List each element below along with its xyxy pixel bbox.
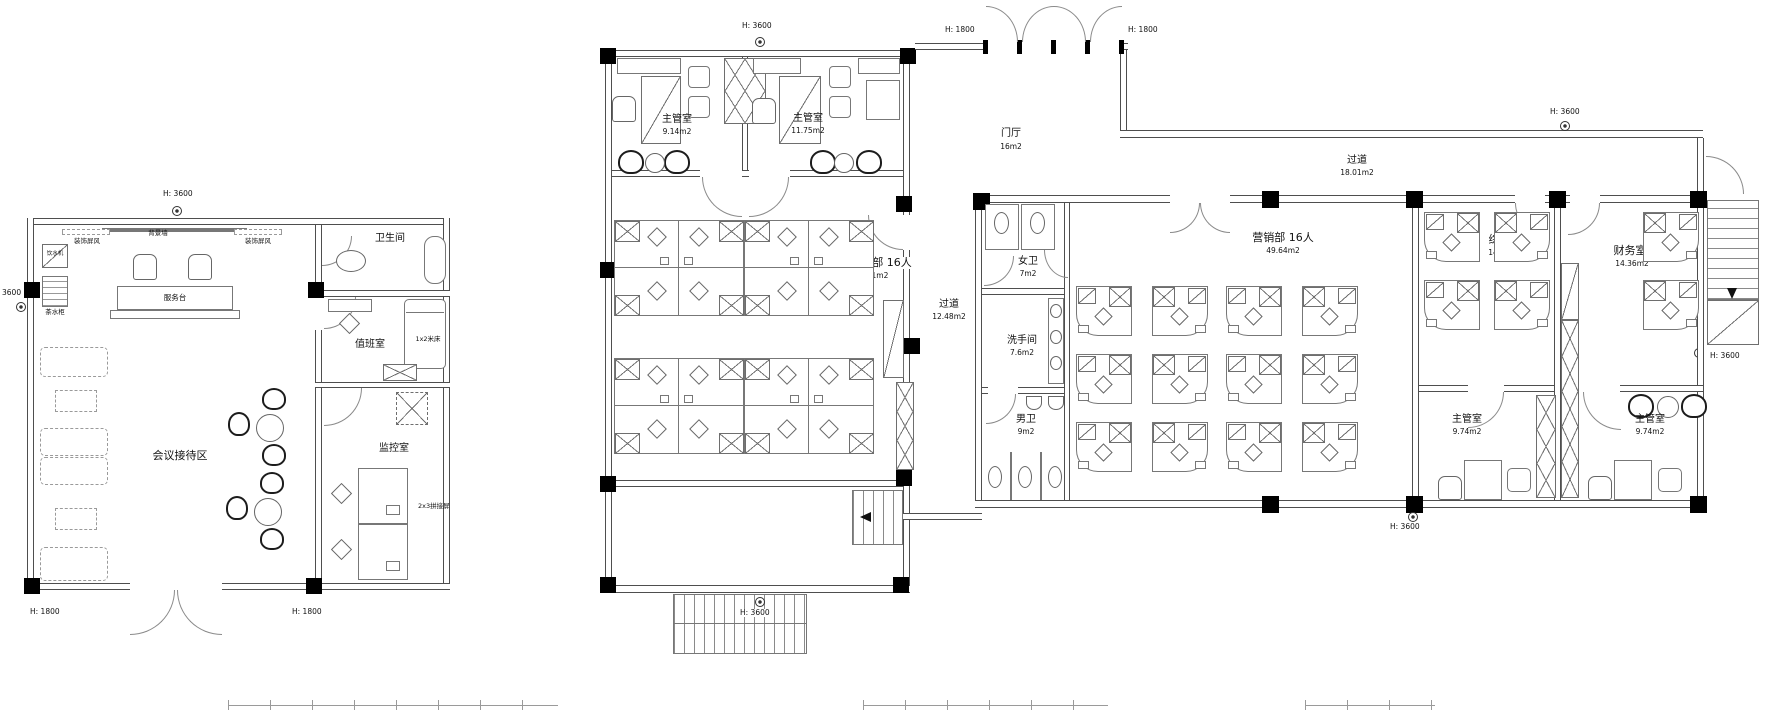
door-post bbox=[983, 40, 988, 54]
wall bbox=[982, 288, 1064, 295]
urinal bbox=[1048, 396, 1064, 410]
keyboard bbox=[1338, 424, 1356, 440]
dimension-ticks bbox=[1305, 700, 1435, 710]
cabinet bbox=[1644, 213, 1666, 233]
column bbox=[1262, 191, 1279, 208]
monitor-desk bbox=[358, 524, 408, 580]
area-label-super3: 9.74m2 bbox=[1453, 428, 1482, 436]
wall bbox=[1120, 130, 1703, 138]
cabinet bbox=[617, 58, 681, 74]
cabinet bbox=[849, 359, 874, 380]
desk-phone bbox=[684, 395, 693, 403]
dim-h3600: H: 3600 bbox=[742, 22, 772, 30]
closet bbox=[1561, 320, 1579, 498]
desk-phone bbox=[660, 257, 669, 265]
chair bbox=[133, 254, 157, 280]
keyboard bbox=[1228, 424, 1246, 440]
exterior-stair bbox=[673, 594, 807, 654]
cabinet bbox=[745, 359, 770, 380]
door-post bbox=[1051, 40, 1056, 54]
area-label-super2: 11.75m2 bbox=[791, 127, 825, 135]
column bbox=[24, 578, 40, 594]
dim-h3600: H: 3600 bbox=[1390, 523, 1420, 531]
area-label-wc-men: 9m2 bbox=[1018, 428, 1035, 436]
wall bbox=[903, 57, 910, 215]
pc bbox=[1078, 393, 1089, 401]
cabinet bbox=[719, 359, 744, 380]
door-arc bbox=[1706, 156, 1744, 194]
wall bbox=[903, 513, 982, 520]
area-label-marketing: 49.64m2 bbox=[1266, 247, 1300, 255]
cabinet bbox=[1303, 287, 1325, 307]
toilet bbox=[1048, 466, 1062, 488]
mirror-cabinet bbox=[1561, 263, 1579, 320]
column bbox=[600, 476, 616, 492]
stall-divider bbox=[1010, 452, 1012, 500]
pc bbox=[1078, 461, 1089, 469]
tub-chair bbox=[810, 150, 836, 174]
corridor-v-label: 过道 bbox=[939, 299, 959, 310]
keyboard bbox=[1078, 288, 1096, 304]
wall bbox=[915, 43, 985, 50]
pc bbox=[1686, 319, 1697, 327]
tub-chair bbox=[228, 412, 250, 436]
bed bbox=[404, 299, 446, 369]
pc-desk bbox=[866, 80, 900, 120]
level-symbol bbox=[16, 302, 26, 312]
door-arc bbox=[130, 590, 175, 635]
sink bbox=[336, 250, 366, 272]
desk-phone bbox=[660, 395, 669, 403]
keyboard bbox=[1426, 282, 1444, 298]
wall bbox=[605, 585, 910, 593]
tub-chair bbox=[1681, 394, 1707, 418]
cluster-divider bbox=[744, 405, 874, 406]
cabinet bbox=[1259, 423, 1281, 443]
pc bbox=[1345, 461, 1356, 469]
cabinet bbox=[1457, 213, 1479, 233]
cabinet bbox=[1495, 213, 1517, 233]
room-label-toilet: 卫生间 bbox=[375, 233, 405, 244]
sink bbox=[1050, 330, 1062, 344]
keyboard bbox=[1078, 356, 1096, 372]
keyboard bbox=[1188, 288, 1206, 304]
room-label-super4: 主管室 bbox=[1635, 414, 1665, 425]
column bbox=[896, 196, 912, 212]
stall-divider bbox=[1040, 452, 1042, 500]
label-bg-wall: 背景墙 bbox=[148, 230, 168, 237]
column bbox=[600, 48, 616, 64]
pc bbox=[1228, 461, 1239, 469]
level-symbol bbox=[172, 206, 182, 216]
area-label-wc-women: 7m2 bbox=[1020, 270, 1037, 278]
wall bbox=[27, 218, 450, 225]
cluster-divider bbox=[808, 358, 809, 454]
coffee-table bbox=[55, 508, 97, 530]
chair bbox=[1588, 476, 1612, 500]
stair-arrow bbox=[1727, 288, 1737, 299]
wall bbox=[1600, 195, 1703, 203]
sofa bbox=[40, 347, 108, 377]
cabinet bbox=[615, 359, 640, 380]
stair-rail bbox=[673, 623, 807, 624]
door-arc bbox=[986, 394, 1016, 424]
duty-desk bbox=[328, 299, 372, 312]
cabinet bbox=[753, 58, 801, 74]
cabinet bbox=[615, 295, 640, 316]
room-label-washroom: 洗手间 bbox=[1007, 335, 1037, 346]
stair-turn bbox=[1707, 300, 1759, 345]
cabinet bbox=[1259, 287, 1281, 307]
level-symbol bbox=[1408, 512, 1418, 522]
wall bbox=[27, 583, 130, 590]
cluster-divider bbox=[744, 267, 874, 268]
cabinet bbox=[1259, 355, 1281, 375]
sofa bbox=[40, 547, 108, 581]
keyboard bbox=[1530, 214, 1548, 230]
cabinet bbox=[383, 364, 417, 381]
cabinet bbox=[1109, 355, 1131, 375]
cabinet bbox=[745, 221, 770, 242]
cluster-divider bbox=[808, 220, 809, 316]
cabinet bbox=[719, 433, 744, 454]
desk-phone bbox=[684, 257, 693, 265]
pc bbox=[1426, 251, 1437, 259]
tub-chair bbox=[262, 388, 286, 410]
cluster-divider bbox=[614, 405, 744, 406]
desk-phone bbox=[790, 257, 799, 265]
level-symbol bbox=[755, 597, 765, 607]
wall bbox=[1412, 203, 1419, 500]
cabinet bbox=[719, 221, 744, 242]
toilet bbox=[994, 212, 1009, 234]
cabinet bbox=[719, 295, 744, 316]
door-arc bbox=[1568, 203, 1600, 235]
pc bbox=[386, 561, 400, 571]
cluster-divider bbox=[678, 220, 679, 316]
cabinet bbox=[1644, 281, 1666, 301]
deco-screen bbox=[62, 229, 110, 235]
cabinet bbox=[1457, 281, 1479, 301]
door-post bbox=[1119, 40, 1124, 54]
room-label-wc-men: 男卫 bbox=[1016, 414, 1036, 425]
desk-phone bbox=[814, 395, 823, 403]
wall bbox=[742, 170, 749, 177]
background-wall bbox=[102, 228, 247, 232]
toilet bbox=[1018, 466, 1032, 488]
cabinet bbox=[849, 433, 874, 454]
door-post bbox=[1017, 40, 1022, 54]
door-arc bbox=[1583, 392, 1621, 430]
guest-chair bbox=[829, 96, 851, 118]
column bbox=[1406, 191, 1423, 208]
door-arc bbox=[984, 256, 1014, 286]
closet bbox=[1536, 395, 1556, 498]
room-label-marketing: 营销部 16人 bbox=[1252, 232, 1314, 244]
column bbox=[24, 282, 40, 298]
column bbox=[1549, 191, 1566, 208]
keyboard bbox=[1338, 288, 1356, 304]
desk-phone bbox=[790, 395, 799, 403]
pc bbox=[1195, 393, 1206, 401]
keyboard bbox=[1188, 356, 1206, 372]
guest-chair bbox=[829, 66, 851, 88]
chair bbox=[331, 539, 352, 560]
wall bbox=[975, 195, 982, 508]
label-deco-screen: 装饰屏风 bbox=[74, 238, 100, 245]
door-arc bbox=[1044, 250, 1068, 278]
keyboard bbox=[1679, 214, 1697, 230]
wall bbox=[605, 50, 915, 57]
column bbox=[896, 470, 912, 486]
toilet bbox=[1030, 212, 1045, 234]
wall bbox=[1064, 203, 1070, 500]
door-arc bbox=[749, 177, 789, 217]
keyboard bbox=[1188, 424, 1206, 440]
chair bbox=[188, 254, 212, 280]
door-arc bbox=[1090, 6, 1122, 42]
dim-h1800: H: 1800 bbox=[1128, 26, 1158, 34]
keyboard bbox=[1338, 356, 1356, 372]
dim-h1800: H: 1800 bbox=[945, 26, 975, 34]
column bbox=[900, 48, 916, 64]
pc bbox=[1426, 319, 1437, 327]
desk bbox=[1614, 460, 1652, 500]
column bbox=[1406, 496, 1423, 513]
pc bbox=[1195, 461, 1206, 469]
room-label-monitor: 监控室 bbox=[379, 443, 409, 454]
room-label-reception: 会议接待区 bbox=[153, 450, 208, 462]
keyboard bbox=[1078, 424, 1096, 440]
keyboard bbox=[1426, 214, 1444, 230]
cabinet bbox=[745, 295, 770, 316]
deco-screen bbox=[234, 229, 282, 235]
closet bbox=[896, 382, 914, 470]
pc bbox=[1537, 251, 1548, 259]
dim-h3600: H: 3600 bbox=[1550, 108, 1580, 116]
sofa bbox=[40, 428, 108, 456]
mirror-cabinet bbox=[883, 300, 904, 378]
label-bed: 1x2米床 bbox=[415, 336, 440, 343]
tub-chair bbox=[260, 472, 284, 494]
wall bbox=[975, 195, 1170, 203]
keyboard bbox=[1679, 282, 1697, 298]
toilet bbox=[988, 466, 1002, 488]
corridor-top-label: 过道 bbox=[1347, 155, 1367, 166]
corridor-top-area: 18.01m2 bbox=[1340, 169, 1374, 177]
wall bbox=[982, 387, 988, 394]
wall bbox=[27, 218, 34, 590]
room-label-duty: 值班室 bbox=[355, 339, 385, 350]
dim-3600: 3600 bbox=[2, 289, 21, 297]
room-label-wc-women: 女卫 bbox=[1018, 256, 1038, 267]
pc bbox=[1537, 319, 1548, 327]
corridor-v-area: 12.48m2 bbox=[932, 313, 966, 321]
guest-chair bbox=[1507, 468, 1531, 492]
round-table bbox=[834, 153, 854, 173]
service-desk-front bbox=[110, 310, 240, 319]
pc bbox=[1078, 325, 1089, 333]
desk-phone bbox=[814, 257, 823, 265]
dim-h1800: H: 1800 bbox=[30, 608, 60, 616]
cabinet bbox=[858, 58, 900, 74]
dim-h3600: H: 3600 bbox=[163, 190, 193, 198]
sofa bbox=[40, 457, 108, 485]
cabinet bbox=[745, 433, 770, 454]
sink bbox=[1050, 304, 1062, 318]
tub-chair bbox=[618, 150, 644, 174]
wall bbox=[1018, 387, 1064, 394]
wall bbox=[1697, 138, 1704, 198]
cabinet bbox=[849, 295, 874, 316]
wall bbox=[322, 290, 450, 297]
door-arc bbox=[1200, 203, 1230, 233]
cabinet bbox=[1153, 355, 1175, 375]
cabinet bbox=[1303, 423, 1325, 443]
area-label-foyer: 16m2 bbox=[1000, 143, 1022, 151]
dimension-ticks bbox=[863, 700, 1108, 710]
pc bbox=[1228, 325, 1239, 333]
wall bbox=[605, 50, 612, 593]
pc bbox=[1195, 325, 1206, 333]
dim-h1800: H: 1800 bbox=[292, 608, 322, 616]
urinal bbox=[1026, 396, 1042, 410]
dimension-ticks bbox=[228, 700, 558, 710]
chair bbox=[612, 96, 636, 122]
cabinet bbox=[1109, 423, 1131, 443]
monitor-desk bbox=[358, 468, 408, 524]
guest-chair bbox=[688, 66, 710, 88]
chair bbox=[752, 98, 776, 124]
keyboard bbox=[1228, 288, 1246, 304]
wall bbox=[315, 330, 322, 583]
chair bbox=[1438, 476, 1462, 500]
splice-screen-box bbox=[396, 392, 428, 425]
column bbox=[306, 578, 322, 594]
cabinet bbox=[1495, 281, 1517, 301]
cabinet bbox=[1303, 355, 1325, 375]
desk bbox=[1464, 460, 1502, 500]
chair bbox=[331, 483, 352, 504]
room-label-super2: 主管室 bbox=[793, 113, 823, 124]
keyboard bbox=[1530, 282, 1548, 298]
pc bbox=[1345, 393, 1356, 401]
dim-h3600: H: 3600 bbox=[740, 609, 770, 617]
label-splice-screen: 2x3拼接屏 bbox=[418, 503, 450, 510]
cabinet bbox=[849, 221, 874, 242]
sink bbox=[1050, 356, 1062, 370]
column bbox=[600, 577, 616, 593]
pc bbox=[1345, 325, 1356, 333]
round-table bbox=[645, 153, 665, 173]
cabinet bbox=[1153, 287, 1175, 307]
column bbox=[893, 577, 909, 593]
door-arc bbox=[324, 388, 362, 426]
stair-arrow bbox=[860, 512, 871, 522]
coffee-table bbox=[55, 390, 97, 412]
column bbox=[904, 338, 920, 354]
label-water-dispenser: 饮水机 bbox=[47, 251, 64, 257]
room-label-super1: 主管室 bbox=[662, 114, 692, 125]
cabinet bbox=[615, 221, 640, 242]
cluster-divider bbox=[614, 267, 744, 268]
wall bbox=[612, 480, 903, 487]
area-label-super4: 9.74m2 bbox=[1636, 428, 1665, 436]
cluster-divider bbox=[678, 358, 679, 454]
label-deco-screen: 装饰屏风 bbox=[245, 238, 271, 245]
tea-cabinet bbox=[42, 276, 68, 307]
tub-chair bbox=[260, 528, 284, 550]
pc bbox=[1686, 251, 1697, 259]
door-arc bbox=[177, 590, 222, 635]
wall bbox=[1419, 385, 1468, 392]
door-arc bbox=[1054, 6, 1086, 42]
column bbox=[1690, 496, 1707, 513]
round-table bbox=[254, 498, 282, 526]
label-tea-cabinet: 茶水柜 bbox=[45, 309, 65, 316]
label-service-desk: 服务台 bbox=[164, 294, 187, 302]
door-arc bbox=[1022, 6, 1054, 42]
pc bbox=[1228, 393, 1239, 401]
dim-h3600: H: 3600 bbox=[1710, 352, 1740, 360]
cabinet bbox=[1109, 287, 1131, 307]
area-label-washroom: 7.6m2 bbox=[1010, 349, 1034, 357]
door-arc bbox=[702, 177, 742, 217]
floor-plan: 会议接待区 卫生间 值班室 监控室 服务台 背景墙 装饰屏风 装饰屏风 饮水机 … bbox=[0, 0, 1765, 712]
tub-chair bbox=[664, 150, 690, 174]
wall bbox=[222, 583, 450, 590]
tub-chair bbox=[262, 444, 286, 466]
pc bbox=[386, 505, 400, 515]
tub-chair bbox=[856, 150, 882, 174]
wall bbox=[975, 500, 1704, 508]
area-label-super1: 9.14m2 bbox=[663, 128, 692, 136]
column bbox=[1262, 496, 1279, 513]
room-label-foyer: 门厅 bbox=[1001, 128, 1021, 139]
column bbox=[308, 282, 324, 298]
room-label-finance: 财务室 bbox=[1614, 245, 1647, 257]
cabinet bbox=[615, 433, 640, 454]
room-label-super3: 主管室 bbox=[1452, 414, 1482, 425]
column bbox=[1690, 191, 1707, 208]
guest-chair bbox=[1658, 468, 1682, 492]
wall bbox=[1504, 385, 1554, 392]
bed-pillow-line bbox=[406, 312, 444, 313]
door-arc bbox=[986, 6, 1018, 42]
keyboard bbox=[1228, 356, 1246, 372]
level-symbol bbox=[1560, 121, 1570, 131]
door-arc bbox=[1170, 203, 1200, 233]
wall bbox=[1620, 385, 1703, 392]
bathtub bbox=[424, 236, 446, 284]
round-table bbox=[256, 414, 284, 442]
tub-chair bbox=[226, 496, 248, 520]
exterior-stair bbox=[1707, 200, 1759, 300]
level-symbol bbox=[755, 37, 765, 47]
wall bbox=[1120, 50, 1127, 132]
cabinet bbox=[1153, 423, 1175, 443]
door-post bbox=[1085, 40, 1090, 54]
